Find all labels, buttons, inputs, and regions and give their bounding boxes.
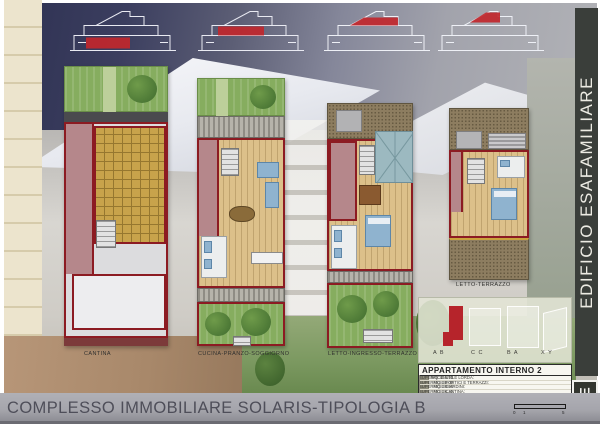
scale-tick: 5 <box>562 410 565 415</box>
porch-deck <box>327 271 413 283</box>
bath-fixture <box>204 241 212 253</box>
section-diagram-top-level <box>434 4 548 57</box>
site-key-plan: A B C C B A X Y <box>418 297 572 363</box>
bathroom <box>201 236 227 278</box>
scale-bar <box>514 404 566 409</box>
staircase <box>467 158 485 184</box>
section-diagram-bedroom-level <box>320 4 434 57</box>
storage-room <box>72 274 166 330</box>
unit-label: B A <box>507 350 519 356</box>
porch-deck <box>197 116 285 138</box>
floor-plan-bedroom <box>327 103 413 348</box>
tree <box>337 295 367 323</box>
bed <box>491 188 517 220</box>
bath-fixture <box>500 160 510 167</box>
garden-path <box>103 67 116 113</box>
bathroom <box>331 225 357 269</box>
garden-steps <box>233 336 251 346</box>
plan-body <box>64 122 168 338</box>
floor-plan-cantina <box>64 66 168 346</box>
roof-panel <box>336 110 362 132</box>
garden-steps <box>363 329 393 343</box>
area-table: APPARTAMENTO INTERNO 2 SUPERFICIE UTILE … <box>418 364 572 394</box>
bed-pillow <box>494 191 516 197</box>
adjacent-unit-room <box>329 141 357 221</box>
bathroom <box>497 156 525 178</box>
unit-label: X Y <box>541 350 553 356</box>
bed <box>365 215 391 247</box>
bath-fixture <box>334 248 342 258</box>
adjacent-unit-room <box>451 152 463 212</box>
plan-body <box>327 139 413 271</box>
staircase <box>96 220 116 248</box>
building-footprint <box>469 308 501 346</box>
garden-area <box>197 78 285 116</box>
section-diagram-living-level <box>194 4 308 57</box>
staircase <box>359 145 375 175</box>
glass-roof <box>375 131 413 183</box>
terrace <box>449 108 529 150</box>
bath-fixture <box>334 230 342 242</box>
garden-area <box>64 66 168 112</box>
sheet-title: COMPLESSO IMMOBILIARE SOLARIS-TIPOLOGIA … <box>7 399 426 418</box>
tree <box>127 75 157 103</box>
scale-tick: 1 <box>523 410 526 415</box>
side-banner-text: EDIFICIO ESAFAMILIARE <box>577 76 597 309</box>
terrace <box>449 238 529 280</box>
floor-plan-top <box>449 108 529 280</box>
render-right-building <box>527 58 575 318</box>
building-footprint <box>543 307 567 353</box>
highlighted-unit <box>443 332 453 346</box>
tree <box>205 312 231 336</box>
side-banner: EDIFICIO ESAFAMILIARE <box>575 8 598 376</box>
lower-wall-band <box>64 338 168 346</box>
tree <box>250 85 276 109</box>
building-footprint <box>507 306 539 348</box>
bath-fixture <box>204 259 212 269</box>
presentation-sheet: CANTINA CUCINA-PRANZO-SOGGIORNO LETTO-IN… <box>0 0 600 424</box>
tree <box>373 291 399 317</box>
title-banner: COMPLESSO IMMOBILIARE SOLARIS-TIPOLOGIA … <box>0 393 600 424</box>
render-facade <box>4 0 42 342</box>
plan-caption-top: LETTO-TERRAZZO <box>456 282 511 288</box>
floor-plan-living <box>197 78 285 346</box>
garden-area <box>197 302 285 346</box>
render-hedge <box>255 352 285 386</box>
unit-label: A B <box>433 350 445 356</box>
unit-label: C C <box>471 350 483 356</box>
plan-caption-bedroom: LETTO-INGRESSO-TERRAZZO <box>328 351 417 357</box>
section-diagram-cantina-level <box>66 4 180 57</box>
kitchen-counter <box>251 252 283 264</box>
sofa <box>265 182 279 208</box>
scale-tick: 0 <box>513 410 516 415</box>
roof-panel <box>488 133 526 149</box>
dining-table <box>229 206 255 222</box>
tree <box>241 308 271 336</box>
staircase <box>221 148 239 176</box>
plan-caption-living: CUCINA-PRANZO-SOGGIORNO <box>198 351 289 357</box>
wardrobe <box>359 185 381 205</box>
garden-path <box>216 79 228 117</box>
bed-pillow <box>368 218 390 224</box>
sofa <box>257 162 279 178</box>
plan-body <box>197 138 285 288</box>
adjacent-unit-room <box>66 124 94 274</box>
adjacent-unit-room <box>199 140 219 236</box>
roof-panel <box>456 131 482 149</box>
plan-body <box>449 150 529 238</box>
terrace-band <box>64 112 168 122</box>
plan-caption-cantina: CANTINA <box>84 351 111 357</box>
garden-area <box>327 283 413 348</box>
porch-deck <box>197 288 285 302</box>
